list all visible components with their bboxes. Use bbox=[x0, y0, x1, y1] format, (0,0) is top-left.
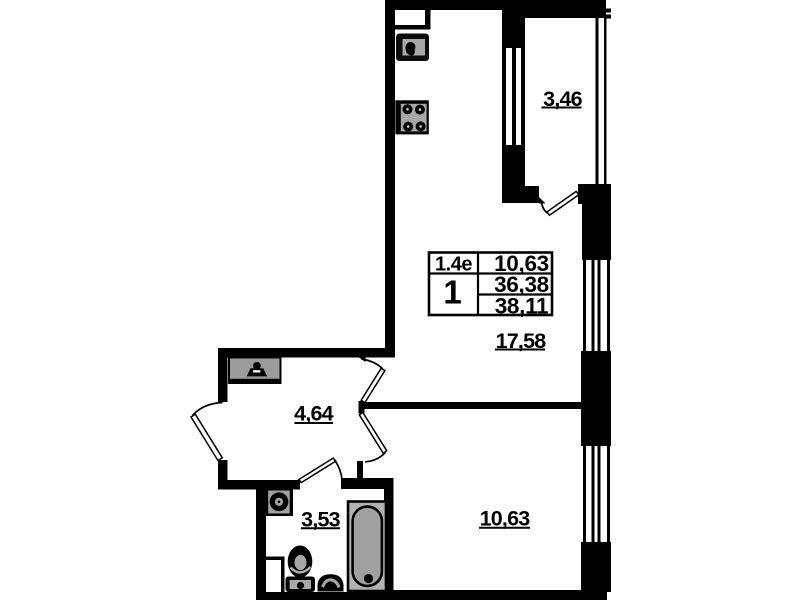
svg-text:4,64: 4,64 bbox=[294, 402, 333, 426]
svg-text:1: 1 bbox=[443, 274, 461, 311]
svg-text:38,11: 38,11 bbox=[495, 294, 549, 319]
svg-text:1.4е: 1.4е bbox=[435, 254, 472, 276]
